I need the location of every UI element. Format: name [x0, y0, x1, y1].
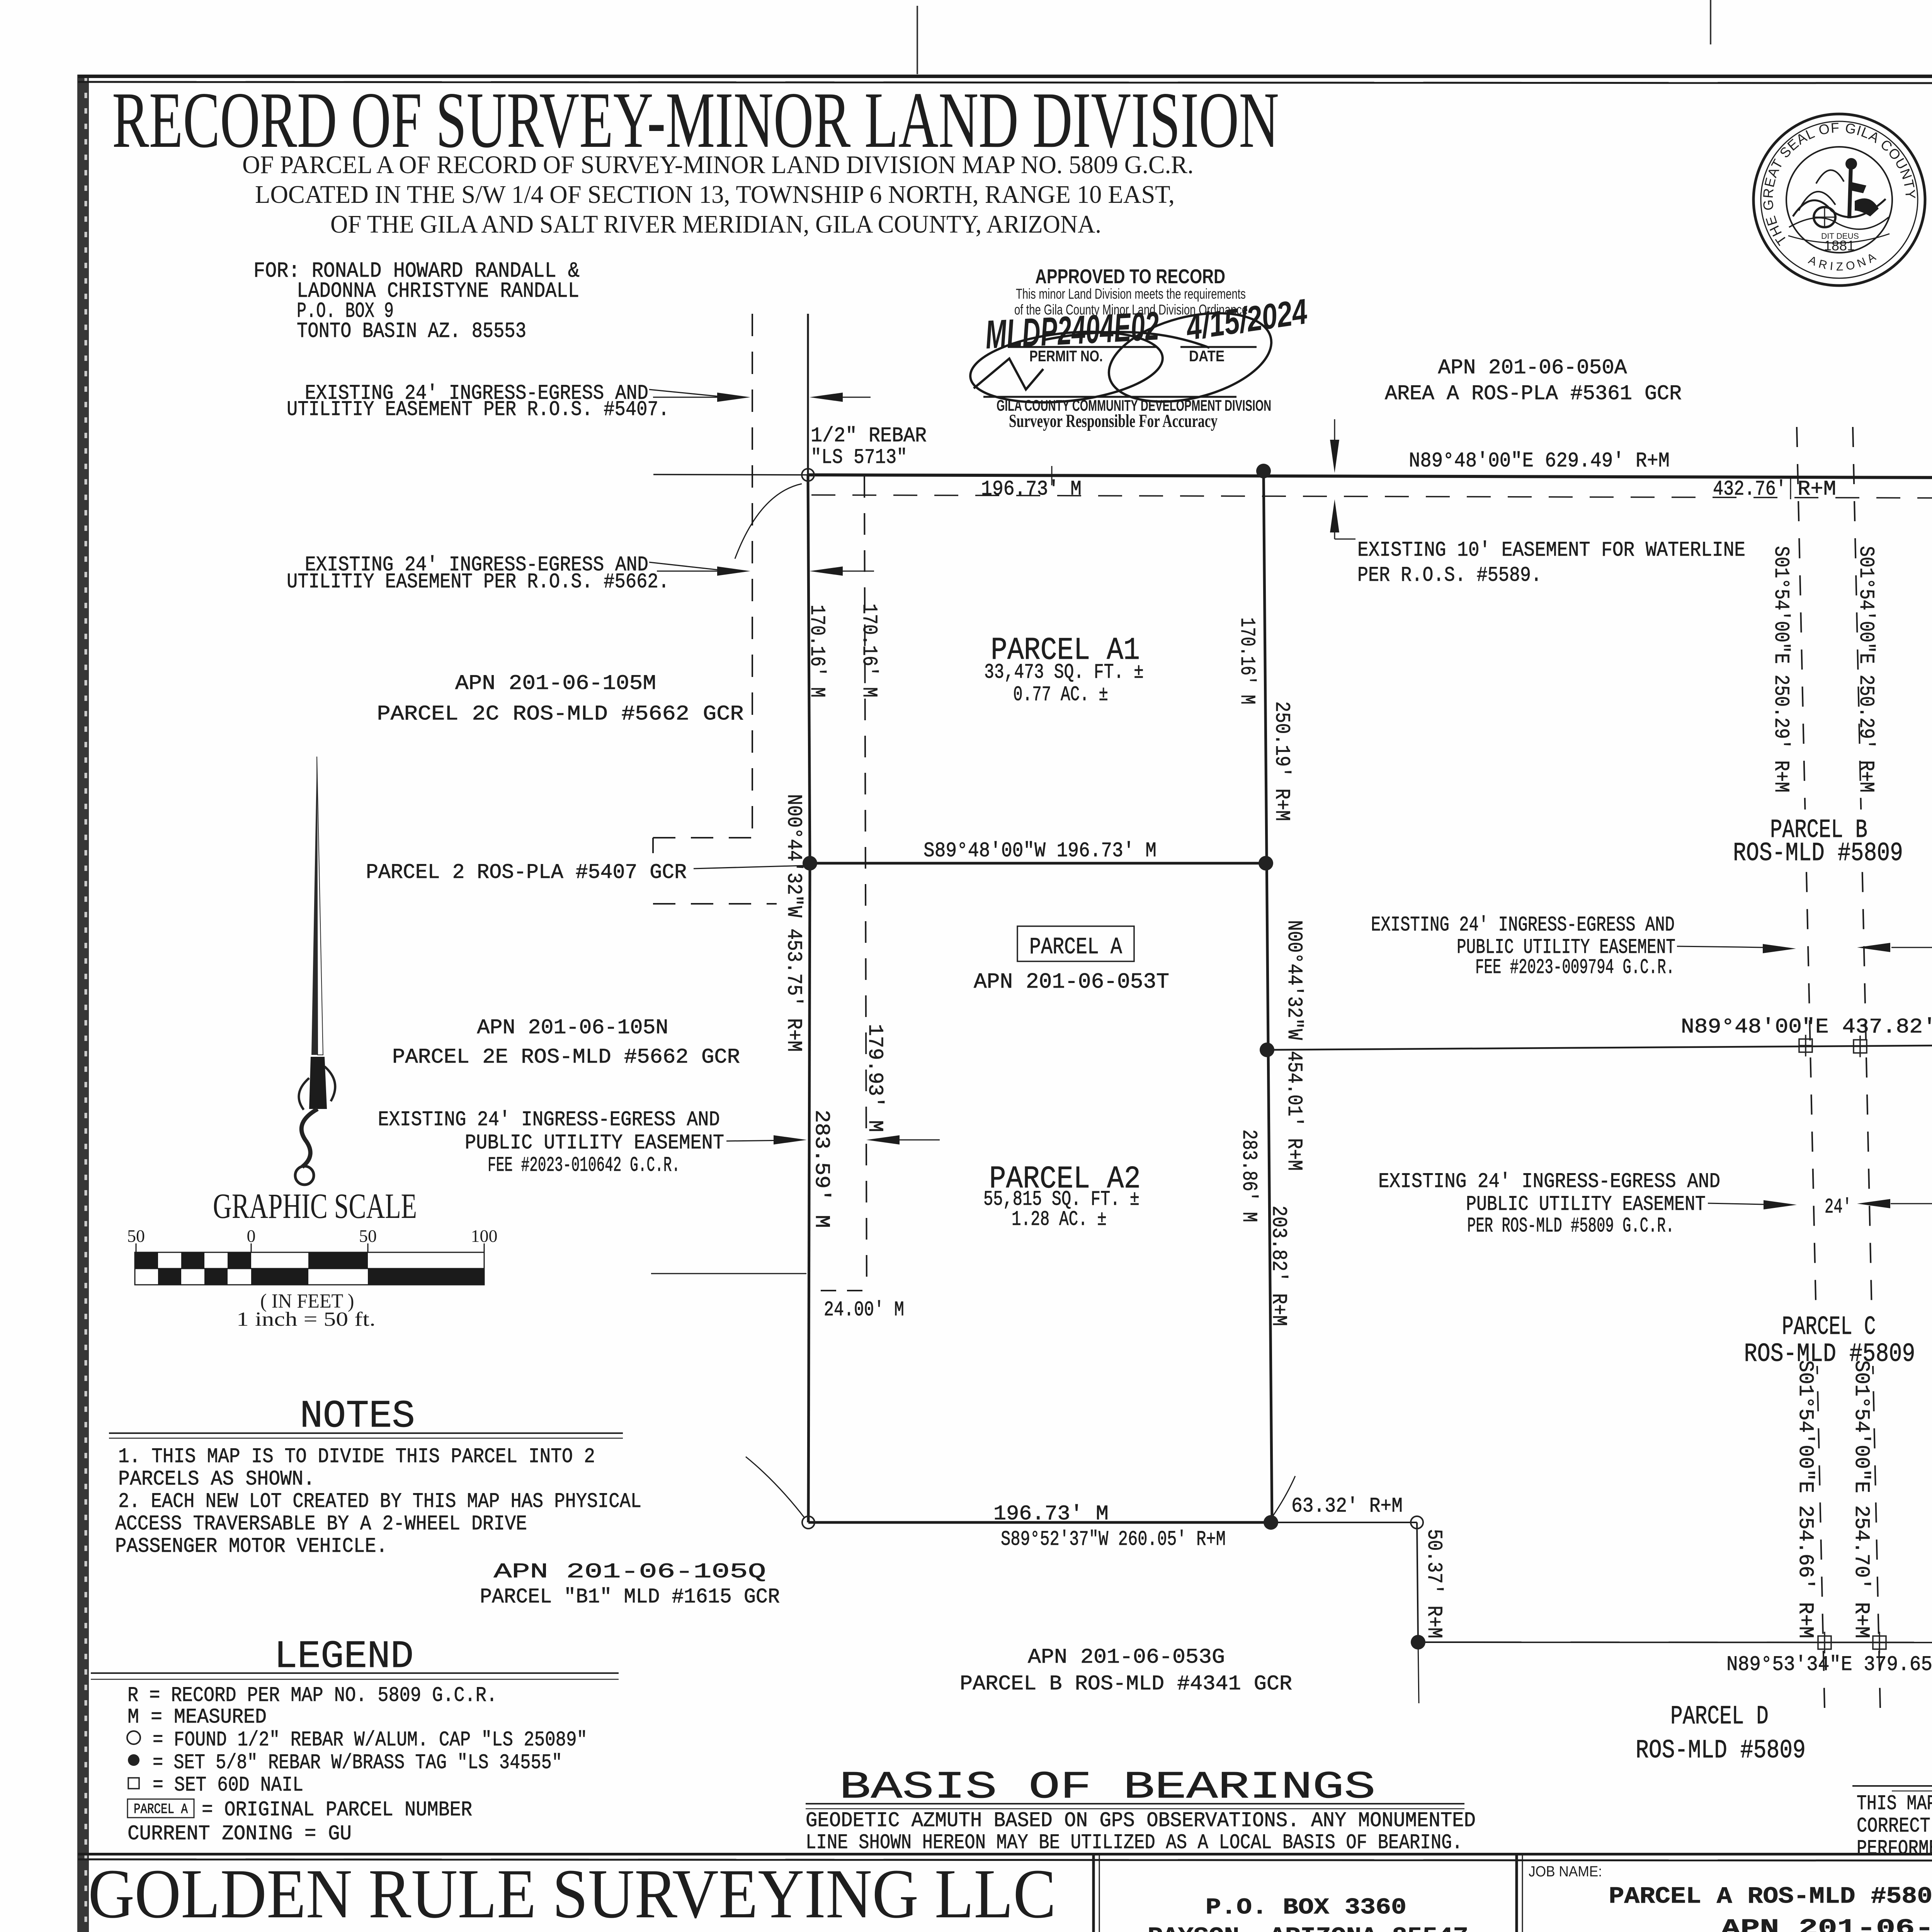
- svg-text:R = RECORD PER MAP NO. 5809 G.: R = RECORD PER MAP NO. 5809 G.C.R.: [128, 1684, 497, 1708]
- svg-text:PARCEL A: PARCEL A: [1029, 934, 1122, 961]
- svg-text:63.32' R+M: 63.32' R+M: [1291, 1495, 1403, 1518]
- svg-text:PARCEL 2C ROS-MLD #5662 GCR: PARCEL 2C ROS-MLD #5662 GCR: [377, 702, 744, 726]
- svg-text:N89°53'34"E 379.65' R+M: N89°53'34"E 379.65' R+M: [1726, 1653, 1932, 1677]
- svg-text:24.00' M: 24.00' M: [824, 1298, 904, 1322]
- svg-text:FEE #2023-009794 G.C.R.: FEE #2023-009794 G.C.R.: [1475, 956, 1675, 980]
- svg-text:EXISTING 24' INGRESS-EGRESS AN: EXISTING 24' INGRESS-EGRESS AND: [1378, 1170, 1720, 1194]
- svg-text:ACCESS TRAVERSABLE BY A 2-WHEE: ACCESS TRAVERSABLE BY A 2-WHEEL DRIVE: [115, 1512, 527, 1536]
- svg-text:OF PARCEL A OF RECORD OF SURVE: OF PARCEL A OF RECORD OF SURVEY-MINOR LA…: [242, 151, 1194, 179]
- svg-text:PUBLIC UTILITY EASEMENT: PUBLIC UTILITY EASEMENT: [465, 1131, 724, 1155]
- svg-text:50: 50: [359, 1226, 377, 1246]
- svg-text:S01°54'00"E 250.29' R+M: S01°54'00"E 250.29' R+M: [1769, 546, 1793, 793]
- svg-text:EXISTING 10' EASEMENT FOR WATE: EXISTING 10' EASEMENT FOR WATERLINE: [1357, 539, 1745, 562]
- svg-text:ROS-MLD #5809: ROS-MLD #5809: [1733, 838, 1903, 868]
- svg-text:203.82' R+M: 203.82' R+M: [1267, 1206, 1290, 1326]
- svg-text:PERFORMED IN MARCH 2024.: PERFORMED IN MARCH 2024.: [1857, 1837, 1932, 1861]
- svg-text:Surveyor Responsible For Accur: Surveyor Responsible For Accuracy: [1009, 411, 1218, 431]
- svg-text:196.73' M: 196.73' M: [993, 1502, 1109, 1526]
- svg-text:FEE #2023-010642 G.C.R.: FEE #2023-010642 G.C.R.: [488, 1154, 680, 1177]
- svg-text:APN 201-06-053T: APN 201-06-053T: [1721, 1916, 1932, 1932]
- svg-text:APN 201-06-053T: APN 201-06-053T: [974, 969, 1169, 994]
- svg-text:PASSENGER MOTOR VEHICLE.: PASSENGER MOTOR VEHICLE.: [115, 1535, 388, 1558]
- svg-text:PER ROS-MLD #5809 G.C.R.: PER ROS-MLD #5809 G.C.R.: [1467, 1214, 1674, 1238]
- svg-text:M = MEASURED: M = MEASURED: [128, 1706, 267, 1729]
- svg-text:PARCELS AS SHOWN.: PARCELS AS SHOWN.: [118, 1468, 315, 1491]
- svg-text:S89°52'37"W 260.05' R+M: S89°52'37"W 260.05' R+M: [1001, 1528, 1226, 1551]
- svg-text:1/2" REBAR: 1/2" REBAR: [811, 424, 927, 448]
- svg-text:N00°44'32"W 454.01' R+M: N00°44'32"W 454.01' R+M: [1282, 920, 1306, 1171]
- svg-text:= SET 60D NAIL: = SET 60D NAIL: [153, 1774, 303, 1797]
- svg-text:JOB NAME:: JOB NAME:: [1529, 1864, 1602, 1880]
- svg-text:PARCEL D: PARCEL D: [1670, 1702, 1769, 1731]
- svg-text:PARCEL B ROS-MLD #4341 GCR: PARCEL B ROS-MLD #4341 GCR: [960, 1672, 1292, 1696]
- svg-text:THIS MAP, CONSISTING OF ONE SH: THIS MAP, CONSISTING OF ONE SHEET: [1857, 1792, 1932, 1816]
- svg-text:PER R.O.S. #5589.: PER R.O.S. #5589.: [1357, 564, 1542, 587]
- svg-text:UTILITIY EASEMENT PER R.O.S. #: UTILITIY EASEMENT PER R.O.S. #5662.: [287, 570, 669, 594]
- svg-text:N00°44'32"W 453.75' R+M: N00°44'32"W 453.75' R+M: [782, 794, 805, 1052]
- svg-text:179.93' M: 179.93' M: [863, 1024, 886, 1132]
- svg-text:283.86' M: 283.86' M: [1237, 1129, 1260, 1222]
- svg-text:ROS-MLD #5809: ROS-MLD #5809: [1636, 1736, 1806, 1765]
- svg-text:GRAPHIC SCALE: GRAPHIC SCALE: [213, 1186, 417, 1226]
- svg-text:GEODETIC AZMUTH BASED ON GPS O: GEODETIC AZMUTH BASED ON GPS OBSERVATION…: [806, 1809, 1476, 1833]
- svg-text:170.16' M: 170.16' M: [857, 604, 881, 697]
- svg-text:PARCEL "B1" MLD #1615 GCR: PARCEL "B1" MLD #1615 GCR: [480, 1585, 780, 1609]
- svg-text:1. THIS MAP IS TO DIVIDE THIS: 1. THIS MAP IS TO DIVIDE THIS PARCEL INT…: [118, 1445, 595, 1469]
- svg-text:APN 201-06-053G: APN 201-06-053G: [1028, 1646, 1225, 1669]
- svg-text:33,473 SQ. FT. ±: 33,473 SQ. FT. ±: [984, 661, 1144, 684]
- svg-text:= SET 5/8" REBAR W/BRASS TAG ": = SET 5/8" REBAR W/BRASS TAG "LS 34555": [153, 1751, 562, 1775]
- svg-text:UTILITIY EASEMENT PER R.O.S. #: UTILITIY EASEMENT PER R.O.S. #5407.: [287, 398, 669, 422]
- svg-text:PARCEL 2 ROS-PLA #5407 GCR: PARCEL 2 ROS-PLA #5407 GCR: [366, 861, 687, 884]
- svg-text:= ORIGINAL PARCEL NUMBER: = ORIGINAL PARCEL NUMBER: [202, 1798, 472, 1822]
- svg-text:OF THE GILA AND SALT RIVER MER: OF THE GILA AND SALT RIVER MERIDIAN, GIL…: [330, 210, 1101, 238]
- svg-text:PUBLIC UTILITY EASEMENT: PUBLIC UTILITY EASEMENT: [1466, 1193, 1706, 1216]
- svg-text:24': 24': [1825, 1196, 1852, 1219]
- svg-text:"LS 5713": "LS 5713": [811, 446, 907, 469]
- svg-text:APN 201-06-105Q: APN 201-06-105Q: [494, 1560, 766, 1584]
- svg-text:LOCATED IN THE S/W 1/4 OF SECT: LOCATED IN THE S/W 1/4 OF SECTION 13, TO…: [255, 180, 1175, 209]
- svg-text:0.77 AC. ±: 0.77 AC. ±: [1013, 683, 1108, 707]
- svg-text:170.16' M: 170.16' M: [805, 605, 828, 697]
- svg-text:PARCEL C: PARCEL C: [1782, 1312, 1876, 1342]
- svg-text:250.19' R+M: 250.19' R+M: [1270, 701, 1293, 821]
- svg-text:S01°54'00"E 254.70' R+M: S01°54'00"E 254.70' R+M: [1849, 1360, 1873, 1638]
- svg-text:PERMIT NO.: PERMIT NO.: [1029, 348, 1103, 365]
- svg-text:This minor Land Division meets: This minor Land Division meets the requi…: [1016, 286, 1246, 302]
- svg-text:R+M: R+M: [1798, 478, 1836, 501]
- svg-text:CORRECTLY REPRESENTS A SURVEY: CORRECTLY REPRESENTS A SURVEY: [1857, 1815, 1932, 1838]
- svg-text:= FOUND 1/2" REBAR W/ALUM. CAP: = FOUND 1/2" REBAR W/ALUM. CAP "LS 25089…: [153, 1728, 587, 1752]
- svg-text:ROS-MLD #5809: ROS-MLD #5809: [1744, 1339, 1915, 1369]
- svg-text:0: 0: [247, 1226, 256, 1246]
- svg-text:EXISTING 24' INGRESS-EGRESS AN: EXISTING 24' INGRESS-EGRESS AND: [378, 1108, 720, 1132]
- svg-text:432.76': 432.76': [1713, 478, 1786, 501]
- svg-text:APN 201-06-105N: APN 201-06-105N: [477, 1016, 668, 1040]
- svg-text:S89°48'00"W 196.73' M: S89°48'00"W 196.73' M: [923, 839, 1156, 863]
- svg-text:TONTO BASIN AZ. 85553: TONTO BASIN AZ. 85553: [297, 319, 526, 344]
- svg-text:APN 201-06-050A: APN 201-06-050A: [1438, 356, 1628, 380]
- svg-text:196.73' M: 196.73' M: [981, 478, 1082, 501]
- svg-text:50: 50: [127, 1226, 145, 1246]
- svg-text:N89°48'00"E 629.49' R+M: N89°48'00"E 629.49' R+M: [1409, 449, 1670, 473]
- svg-text:2. EACH NEW LOT CREATED BY THI: 2. EACH NEW LOT CREATED BY THIS MAP HAS …: [118, 1490, 641, 1514]
- svg-text:EXISTING 24' INGRESS-EGRESS AN: EXISTING 24' INGRESS-EGRESS AND: [1371, 913, 1675, 937]
- svg-text:PARCEL A: PARCEL A: [134, 1801, 188, 1817]
- svg-text:DATE: DATE: [1189, 348, 1225, 365]
- svg-text:1.28 AC. ±: 1.28 AC. ±: [1012, 1208, 1107, 1231]
- svg-text:100: 100: [471, 1226, 498, 1246]
- svg-text:283.59' M: 283.59' M: [810, 1110, 833, 1228]
- svg-text:1881: 1881: [1824, 238, 1855, 253]
- svg-text:S01°54'00"E 254.66' R+M: S01°54'00"E 254.66' R+M: [1793, 1360, 1817, 1638]
- svg-text:N89°48'00"E 437.82' R+M: N89°48'00"E 437.82' R+M: [1681, 1015, 1932, 1039]
- svg-text:170.16' M: 170.16' M: [1235, 617, 1259, 704]
- svg-text:S01°54'00"E 250.29' R+M: S01°54'00"E 250.29' R+M: [1854, 546, 1878, 793]
- svg-text:P.O. BOX 3360: P.O. BOX 3360: [1206, 1895, 1406, 1920]
- svg-text:AREA A ROS-PLA #5361 GCR: AREA A ROS-PLA #5361 GCR: [1385, 382, 1682, 406]
- svg-text:CURRENT ZONING = GU: CURRENT ZONING = GU: [128, 1822, 352, 1846]
- svg-text:APN 201-06-105M: APN 201-06-105M: [455, 672, 656, 696]
- svg-text:PARCEL A ROS-MLD #5809 GCR: PARCEL A ROS-MLD #5809 GCR: [1609, 1884, 1932, 1910]
- svg-text:PARCEL 2E ROS-MLD #5662 GCR: PARCEL 2E ROS-MLD #5662 GCR: [392, 1046, 740, 1069]
- svg-text:GOLDEN RULE SURVEYING LLC: GOLDEN RULE SURVEYING LLC: [88, 1855, 1056, 1932]
- svg-text:1 inch = 50 ft.: 1 inch = 50 ft.: [236, 1308, 376, 1330]
- svg-text:LINE SHOWN HEREON MAY BE UTILI: LINE SHOWN HEREON MAY BE UTILIZED AS A L…: [806, 1831, 1463, 1855]
- svg-text:50.37' R+M: 50.37' R+M: [1422, 1529, 1446, 1638]
- svg-text:PAYSON, ARIZONA 85547: PAYSON, ARIZONA 85547: [1148, 1924, 1468, 1932]
- svg-text:NOTES: NOTES: [300, 1395, 415, 1439]
- svg-text:APPROVED TO RECORD: APPROVED TO RECORD: [1035, 265, 1225, 288]
